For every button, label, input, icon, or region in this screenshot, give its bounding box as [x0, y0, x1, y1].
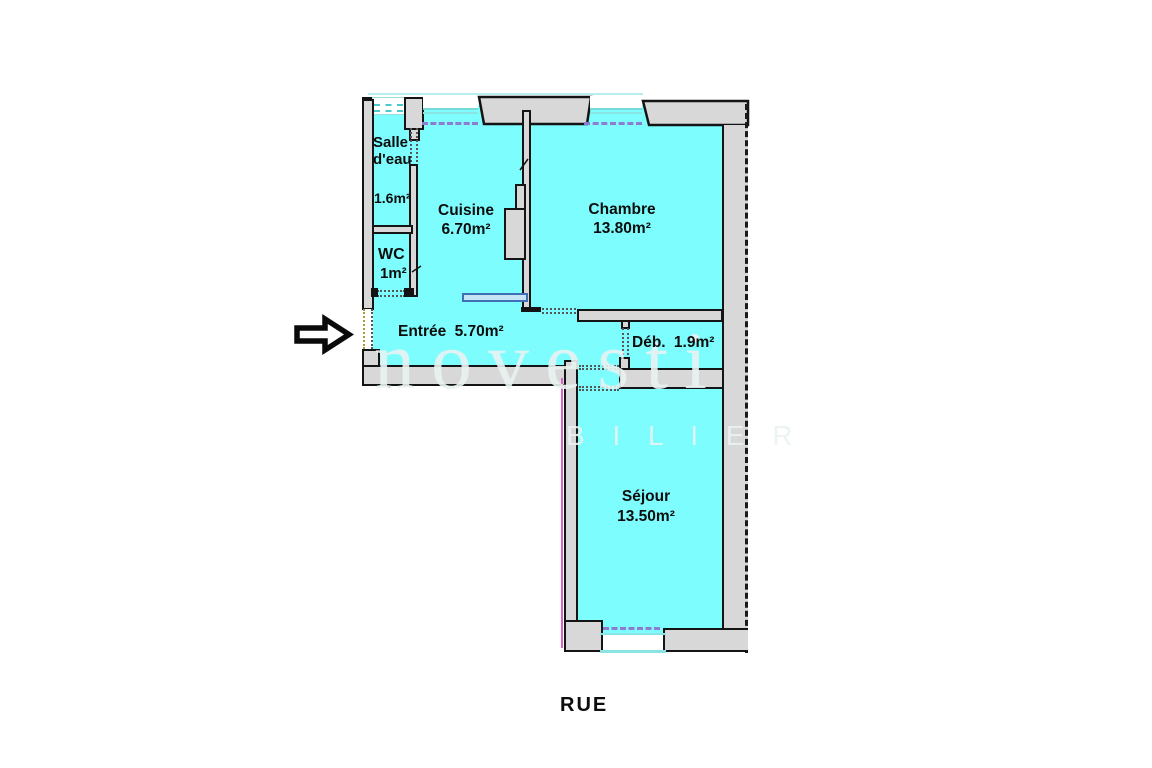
window-salle-deau-dash2: [374, 110, 403, 112]
wall-chambre-bottom: [577, 309, 723, 322]
wall-top-mid-block: [477, 95, 594, 127]
window-sejour: [603, 635, 663, 650]
window-cuisine: [423, 96, 478, 110]
wall-entree-bottom: [362, 365, 578, 386]
label-entree-name: Entrée: [398, 323, 446, 340]
entrance-door-opening: [363, 309, 373, 349]
entrance-arrow-icon: [292, 313, 354, 357]
wall-sejour-left: [564, 360, 578, 652]
label-rue: RUE: [560, 696, 608, 714]
label-debarras: Déb. 1.9m²: [632, 334, 714, 352]
label-debarras-name: Déb.: [632, 334, 666, 351]
wall-salle-deau-wc-divider: [372, 225, 413, 234]
wall-top-right-block: [641, 97, 750, 127]
label-wc-area: 1m²: [380, 265, 407, 283]
wall-foot-wc-right: [404, 288, 414, 297]
label-chambre-area: 13.80m²: [572, 219, 672, 238]
window-chambre: [590, 96, 642, 110]
door-tick-cuisine: [516, 156, 532, 174]
edge-line-magenta: [561, 378, 563, 648]
beam-dashed-sejour: [603, 627, 660, 630]
label-salle-deau-area: 1.6m²: [374, 189, 411, 207]
label-sejour-name: Séjour: [596, 487, 696, 507]
window-salle-deau-dash1: [374, 104, 403, 106]
label-chambre: Chambre 13.80m²: [572, 200, 672, 238]
door-debarras: [622, 328, 629, 359]
duct-step-small: [515, 184, 526, 211]
wall-top-pillar: [404, 97, 424, 130]
label-debarras-area: 1.9m²: [674, 334, 715, 351]
label-salle-deau: Salle d'eau: [373, 134, 412, 168]
opening-entree-corridor: [579, 365, 619, 370]
opening-corridor-sejour: [579, 386, 619, 391]
label-entree-area: 5.70m²: [455, 323, 504, 340]
label-chambre-name: Chambre: [572, 200, 672, 219]
label-sejour: Séjour 13.50m²: [596, 487, 696, 527]
door-chambre: [542, 308, 576, 314]
label-entree: Entrée 5.70m²: [398, 323, 504, 341]
door-wc: [377, 290, 405, 297]
label-cuisine-area: 6.70m²: [418, 220, 514, 239]
label-salle-deau-line2: d'eau: [373, 151, 412, 168]
wall-left-exterior: [362, 99, 374, 310]
beam-dashed-chambre: [584, 122, 642, 125]
label-salle-deau-line1: Salle: [373, 134, 412, 151]
wall-foot-wc-left: [371, 288, 378, 297]
wall-sejour-bottom-left: [564, 620, 603, 652]
wall-sejour-bottom-right: [663, 628, 748, 652]
label-sejour-area: 13.50m²: [596, 507, 696, 527]
window-cuisine-inner-line: [423, 112, 478, 114]
wall-foot-cuisine-chambre: [521, 307, 541, 312]
label-cuisine: Cuisine 6.70m²: [418, 201, 514, 239]
radiator: [462, 293, 528, 302]
property-boundary-dashed: [745, 104, 748, 653]
door-tick-wc: [410, 262, 424, 276]
label-cuisine-name: Cuisine: [418, 201, 514, 220]
window-sejour-bottom-line: [600, 650, 666, 653]
window-salle-deau: [372, 97, 405, 115]
beam-dashed-cuisine: [422, 122, 478, 125]
floor-plan-canvas: novesti B I L I E R Salle d'eau 1.6m² WC…: [0, 0, 1152, 768]
label-wc: WC: [378, 246, 405, 264]
window-chambre-inner-line: [590, 112, 642, 114]
